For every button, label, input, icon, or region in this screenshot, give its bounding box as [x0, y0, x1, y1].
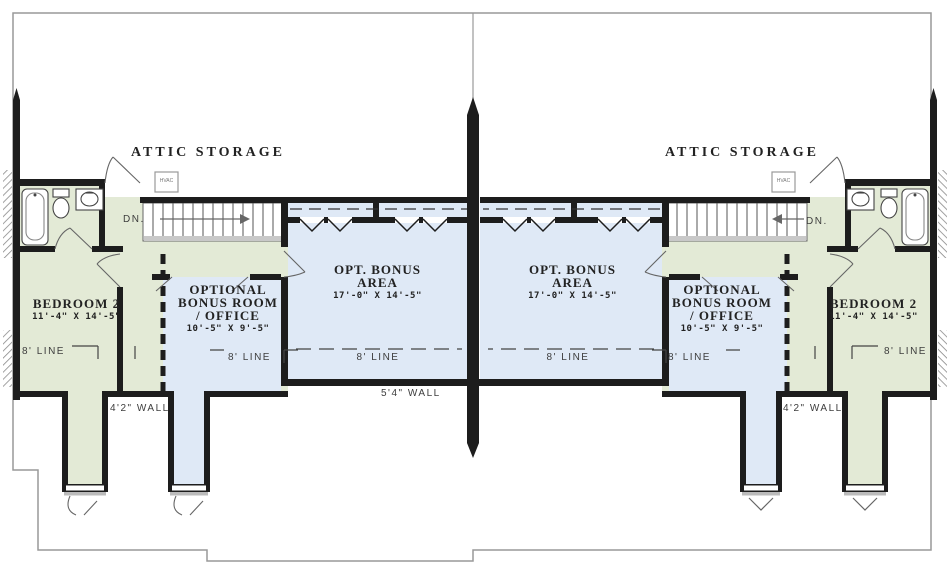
- bonus-area-dims-right: 17'-0" X 14'-5": [500, 290, 645, 302]
- bedroom-label-right: BEDROOM 2 11'-4" X 14'-5": [811, 297, 936, 323]
- floor-plan-canvas: [0, 0, 950, 575]
- dn-label-left: DN.: [123, 214, 145, 225]
- bonus-room-line3-left: / OFFICE: [166, 309, 290, 322]
- hvac-label-right: HVAC: [772, 178, 795, 184]
- bonus-area-label-right: OPT. BONUS AREA 17'-0" X 14'-5": [500, 263, 645, 302]
- bonus-area-line2-right: AREA: [500, 276, 645, 289]
- bonus-room-line3-right: / OFFICE: [660, 309, 784, 322]
- attic-storage-label-left: ATTIC STORAGE: [103, 145, 313, 161]
- bonus-area-dims-left: 17'-0" X 14'-5": [305, 290, 450, 302]
- bedroom-dims-left: 11'-4" X 14'-5": [14, 311, 139, 323]
- bedroom-dims-right: 11'-4" X 14'-5": [811, 311, 936, 323]
- bonus-area-8ft-label-left: 8' LINE: [340, 352, 416, 363]
- bedroom-name-right: BEDROOM 2: [811, 297, 936, 310]
- bedroom-8ft-label-left: 8' LINE: [22, 346, 65, 357]
- bedroom-8ft-label-right: 8' LINE: [884, 346, 927, 357]
- dormer-window-chevrons-right: [749, 498, 877, 510]
- attic-storage-label-right: ATTIC STORAGE: [637, 145, 847, 161]
- bonus-room-8ft-label-right: 8' LINE: [668, 352, 711, 363]
- floor-plan: ATTIC STORAGE HVAC DN. BEDROOM 2 11'-4" …: [0, 0, 950, 575]
- bonus-room-dims-right: 10'-5" X 9'-5": [660, 323, 784, 335]
- bonus-room-label-right: OPTIONAL BONUS ROOM / OFFICE 10'-5" X 9'…: [660, 283, 784, 335]
- bonus-room-8ft-label-left: 8' LINE: [228, 352, 271, 363]
- knee-wall-label-right: 4'2" WALL: [783, 403, 843, 414]
- bedroom-name-left: BEDROOM 2: [14, 297, 139, 310]
- dn-label-right: DN.: [806, 216, 828, 227]
- party-wall-label: 5'4" WALL: [381, 388, 441, 399]
- knee-wall-label-left: 4'2" WALL: [110, 403, 170, 414]
- bonus-area-label-left: OPT. BONUS AREA 17'-0" X 14'-5": [305, 263, 450, 302]
- hvac-label-left: HVAC: [155, 178, 178, 184]
- bonus-area-8ft-label-right: 8' LINE: [530, 352, 606, 363]
- party-wall: [467, 13, 479, 458]
- bonus-room-label-left: OPTIONAL BONUS ROOM / OFFICE 10'-5" X 9'…: [166, 283, 290, 335]
- bonus-area-line2-left: AREA: [305, 276, 450, 289]
- bedroom-label-left: BEDROOM 2 11'-4" X 14'-5": [14, 297, 139, 323]
- bonus-room-dims-left: 10'-5" X 9'-5": [166, 323, 290, 335]
- dormer-window-swings-left: [68, 496, 203, 515]
